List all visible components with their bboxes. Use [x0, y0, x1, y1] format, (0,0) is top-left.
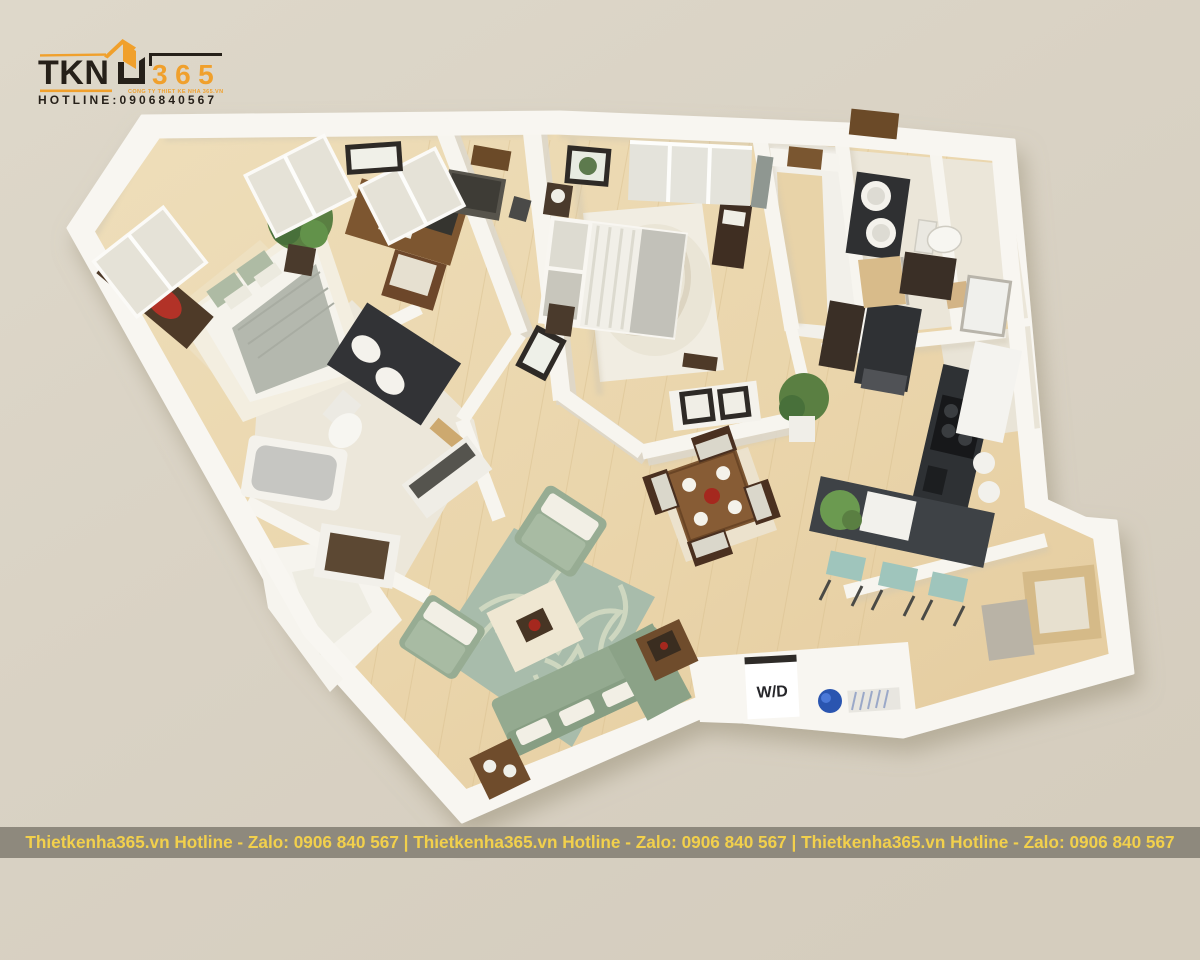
- svg-text:HOTLINE:0906840567: HOTLINE:0906840567: [38, 93, 217, 107]
- svg-text:TKN: TKN: [38, 54, 109, 92]
- svg-text:365: 365: [152, 59, 221, 90]
- svg-text:W/D: W/D: [756, 683, 788, 702]
